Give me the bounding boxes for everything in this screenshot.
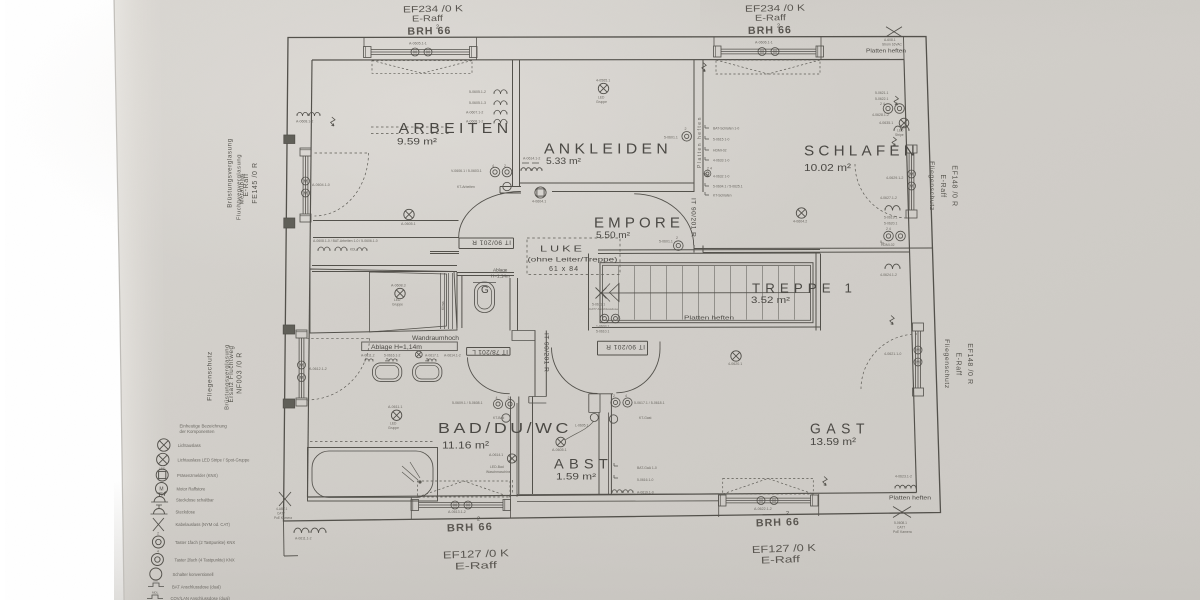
svg-text:Motor Raffstore: Motor Raffstore (177, 487, 206, 492)
svg-text:SCHLAFEN: SCHLAFEN (804, 144, 919, 160)
svg-text:A-0608.3: A-0608.3 (391, 284, 406, 288)
svg-text:BRH 66: BRH 66 (756, 516, 800, 530)
svg-text:5-0621.1: 5-0621.1 (875, 91, 888, 95)
svg-text:LED: LED (897, 129, 904, 133)
svg-text:5-0601.1: 5-0601.1 (659, 240, 673, 244)
svg-text:Metallbau: Metallbau (240, 174, 246, 205)
svg-text:A-0612.1-2: A-0612.1-2 (309, 367, 327, 371)
svg-text:A-0605.1-1: A-0605.1-1 (409, 42, 427, 46)
svg-text:11.16 m²: 11.16 m² (442, 441, 490, 452)
svg-text:BRH 66: BRH 66 (447, 521, 493, 535)
svg-text:5-0608.1: 5-0608.1 (894, 521, 907, 525)
svg-text:5-0604.1 / 5-0625.1: 5-0604.1 / 5-0625.1 (713, 185, 743, 189)
svg-text:Brüstungsverglasung: Brüstungsverglasung (225, 344, 231, 410)
svg-text:A-0608.1-2: A-0608.1-2 (466, 120, 483, 124)
svg-text:4: 4 (492, 164, 494, 168)
svg-text:V-0606.1 / 5-0603.1: V-0606.1 / 5-0603.1 (451, 169, 482, 173)
svg-text:L-0605.1: L-0605.1 (575, 424, 588, 428)
svg-text:EF127 /0 K: EF127 /0 K (443, 548, 510, 561)
svg-text:A-0608.1-0 / BAT-Arbeiten 1-0: A-0608.1-0 / BAT-Arbeiten 1-0 / 5-0606.1… (313, 239, 378, 243)
svg-text:GAST: GAST (810, 421, 870, 438)
svg-text:4: 4 (157, 550, 159, 554)
svg-text:M: M (772, 498, 776, 503)
svg-text:5.33 m²: 5.33 m² (546, 156, 581, 166)
svg-text:der Komponenten: der Komponenten (180, 429, 215, 434)
svg-text:IT 90/201 R: IT 90/201 R (690, 198, 697, 237)
svg-text:(ohne Leiter/Treppe): (ohne Leiter/Treppe) (528, 257, 618, 264)
svg-text:Klima: Klima (441, 301, 445, 310)
svg-text:2 4: 2 4 (886, 227, 891, 231)
svg-text:Fliegenschutz: Fliegenschutz (207, 351, 214, 401)
svg-text:E-Raff: E-Raff (955, 352, 962, 375)
svg-text:M: M (413, 50, 417, 55)
svg-text:1-0603.1: 1-0603.1 (596, 325, 609, 329)
svg-text:A-0614.1-2: A-0614.1-2 (523, 157, 540, 161)
svg-text:5-0619.1: 5-0619.1 (884, 216, 897, 220)
svg-text:4: 4 (496, 396, 498, 400)
svg-text:M: M (916, 348, 920, 353)
svg-text:M: M (910, 184, 914, 189)
svg-text:M: M (300, 375, 304, 380)
svg-text:A-0611.1-2: A-0611.1-2 (295, 537, 312, 541)
svg-text:ABST: ABST (554, 456, 613, 472)
svg-text:5-0605.1-2: 5-0605.1-2 (469, 90, 486, 94)
svg-text:E-Raff: E-Raff (761, 554, 801, 566)
svg-text:NF003 /0 R: NF003 /0 R (237, 352, 244, 394)
svg-text:A-0606.1-1: A-0606.1-1 (755, 41, 773, 45)
svg-text:A-0611.2: A-0611.2 (361, 354, 375, 358)
svg-text:4-0621.1-0: 4-0621.1-0 (884, 352, 901, 356)
svg-text:IT 78/201 L: IT 78/201 L (472, 348, 508, 355)
svg-text:KT-Arbeiten: KT-Arbeiten (457, 185, 475, 189)
svg-text:Fliegenschutz: Fliegenschutz (928, 161, 935, 211)
svg-text:Platten heften: Platten heften (697, 116, 703, 168)
svg-text:Stripe: Stripe (895, 133, 904, 137)
svg-text:BRH 66: BRH 66 (407, 25, 451, 38)
svg-text:Lichtauslass LED Stripe / Spot: Lichtauslass LED Stripe / Spot-Gruppe (178, 458, 251, 463)
svg-text:2: 2 (777, 24, 780, 30)
svg-text:4-0627.1-2: 4-0627.1-2 (880, 196, 897, 200)
svg-text:IT 90/201 R: IT 90/201 R (472, 239, 511, 246)
svg-text:LED-Bad: LED-Bad (490, 465, 504, 469)
svg-text:H=1,14m: H=1,14m (491, 274, 510, 279)
svg-text:2: 2 (685, 127, 687, 131)
svg-text:BRH 66: BRH 66 (748, 24, 792, 37)
svg-text:5-0616.1-0: 5-0616.1-0 (637, 478, 654, 482)
svg-text:2: 2 (436, 25, 439, 31)
svg-text:LED: LED (394, 298, 401, 302)
svg-text:A-0607.1-2: A-0607.1-2 (466, 111, 483, 115)
svg-text:4-0620.1: 4-0620.1 (728, 362, 742, 366)
svg-text:EF148 /0 R: EF148 /0 R (951, 165, 958, 206)
svg-text:2: 2 (504, 164, 506, 168)
svg-text:5-0605.1-3: 5-0605.1-3 (469, 101, 486, 105)
svg-text:9.59 m²: 9.59 m² (397, 137, 437, 148)
svg-text:Lichtauslass: Lichtauslass (178, 443, 201, 448)
svg-text:5-0616.1-2: 5-0616.1-2 (384, 354, 401, 358)
svg-text:KT-Bad: KT-Bad (493, 416, 504, 420)
svg-text:4-0624.1-2: 4-0624.1-2 (880, 273, 897, 277)
svg-text:M: M (760, 49, 764, 54)
svg-text:Kabelauslass (NYM od. CAT): Kabelauslass (NYM od. CAT) (176, 522, 231, 527)
svg-text:Einheutige Bezeichnung: Einheutige Bezeichnung (180, 424, 228, 429)
svg-text:BAD/DU/WC: BAD/DU/WC (438, 420, 572, 437)
svg-text:ARBEITEN: ARBEITEN (399, 121, 513, 137)
svg-text:5-0617.1 / 5-0618.1: 5-0617.1 / 5-0618.1 (634, 401, 665, 405)
svg-text:M: M (759, 498, 763, 503)
svg-text:A-0611.1: A-0611.1 (388, 405, 402, 409)
svg-text:bat: bat (154, 579, 158, 583)
svg-text:E-Raff: E-Raff (455, 560, 498, 572)
svg-text:Platten heften: Platten heften (889, 496, 931, 502)
svg-text:Platten heften: Platten heften (684, 316, 734, 322)
svg-text:4-0604.1: 4-0604.1 (532, 200, 546, 204)
svg-text:Fliegenschutz: Fliegenschutz (943, 339, 950, 389)
svg-text:A-0604.1-0: A-0604.1-0 (312, 183, 330, 187)
svg-text:2: 2 (786, 511, 789, 517)
svg-text:PoE Kamera: PoE Kamera (274, 516, 292, 520)
svg-text:CAT7 Anschlussdose: CAT7 Anschlussdose (589, 307, 618, 311)
svg-text:Platten heften: Platten heften (866, 49, 906, 55)
svg-text:Ablage: Ablage (493, 268, 508, 273)
svg-text:COV/LAN Anschlussdose (dual): COV/LAN Anschlussdose (dual) (171, 596, 231, 600)
svg-text:BAT Anschlussdose (dual): BAT Anschlussdose (dual) (172, 585, 221, 590)
svg-text:IT 90/201 R: IT 90/201 R (543, 333, 550, 372)
svg-text:A-0605.1: A-0605.1 (552, 448, 567, 452)
svg-text:A-0614.1-2: A-0614.1-2 (444, 354, 461, 358)
svg-text:E-Raff: E-Raff (755, 12, 787, 23)
svg-text:KT-Gast: KT-Gast (639, 416, 651, 420)
svg-text:5-0622.1: 5-0622.1 (875, 97, 888, 101)
svg-text:M: M (304, 191, 308, 196)
svg-text:LUKE: LUKE (540, 244, 585, 254)
svg-text:BAT-Schlafen 1-0: BAT-Schlafen 1-0 (713, 127, 739, 131)
svg-text:KDL: KDL (350, 248, 356, 252)
svg-text:LED: LED (390, 422, 397, 426)
svg-text:10.02 m²: 10.02 m² (804, 163, 852, 174)
svg-text:5-0610.1: 5-0610.1 (596, 330, 609, 334)
svg-text:EF148 /0 R: EF148 /0 R (966, 343, 973, 384)
svg-text:A-0619.1-0: A-0619.1-0 (637, 491, 654, 495)
svg-text:4-0633 1-0: 4-0633 1-0 (713, 159, 730, 163)
svg-text:5-0601.1: 5-0601.1 (664, 136, 678, 140)
svg-text:4-0565.1: 4-0565.1 (596, 79, 610, 83)
svg-text:Brüstungsverglasung: Brüstungsverglasung (227, 138, 234, 208)
svg-text:M: M (426, 50, 430, 55)
svg-text:4-ABT.1: 4-ABT.1 (276, 507, 288, 511)
svg-text:2: 2 (157, 532, 159, 536)
svg-text:2: 2 (676, 236, 678, 240)
svg-text:Taster 2fach (4 Tastpunkte) KN: Taster 2fach (4 Tastpunkte) KNX (175, 558, 235, 563)
svg-text:5-0609.1 / 5-0608.1: 5-0609.1 / 5-0608.1 (452, 401, 483, 405)
svg-text:M: M (916, 360, 920, 365)
svg-text:Gruppe: Gruppe (596, 100, 607, 104)
svg-text:4-0629.1-2: 4-0629.1-2 (886, 176, 903, 180)
svg-text:Taster 1fach (2 Tastpunkte) KN: Taster 1fach (2 Tastpunkte) KNX (175, 540, 235, 545)
svg-text:2: 2 (508, 396, 510, 400)
svg-text:Steckdose schaltbar: Steckdose schaltbar (176, 498, 214, 503)
svg-text:4: 4 (625, 394, 627, 398)
svg-text:HDMI-02: HDMI-02 (881, 243, 895, 247)
svg-text:G: G (481, 285, 489, 296)
svg-text:PoE Kamera: PoE Kamera (893, 530, 912, 534)
svg-text:BAT-GaA 1-0: BAT-GaA 1-0 (637, 466, 657, 470)
svg-text:Wandraumhoch: Wandraumhoch (412, 336, 459, 342)
svg-text:2: 2 (613, 394, 615, 398)
svg-text:E-Raff: E-Raff (412, 13, 444, 24)
svg-text:4-0623.1-2: 4-0623.1-2 (895, 475, 912, 479)
svg-text:A-0613.1-2: A-0613.1-2 (448, 510, 466, 514)
svg-text:5.50 m²: 5.50 m² (596, 230, 630, 240)
svg-text:M: M (300, 363, 304, 368)
svg-text:HDMI-02: HDMI-02 (713, 149, 727, 153)
svg-text:LED: LED (598, 96, 605, 100)
svg-text:Gruppe: Gruppe (392, 303, 403, 307)
svg-text:1.59 m²: 1.59 m² (556, 472, 596, 482)
svg-text:Gruppe: Gruppe (388, 426, 399, 430)
svg-text:A-0608.1-2: A-0608.1-2 (296, 120, 313, 124)
svg-text:A-0614.1: A-0614.1 (489, 453, 503, 457)
svg-text:5-0615 1-0: 5-0615 1-0 (713, 138, 730, 142)
svg-text:61 x 84: 61 x 84 (549, 264, 579, 273)
svg-text:A-0617.1: A-0617.1 (425, 354, 439, 358)
svg-text:A-608.1: A-608.1 (884, 38, 896, 42)
svg-text:IT 90/201 R: IT 90/201 R (606, 343, 645, 350)
svg-text:E-Raff: E-Raff (939, 174, 946, 197)
svg-text:4-0635.1: 4-0635.1 (879, 121, 893, 125)
svg-text:Strom 16VAC: Strom 16VAC (882, 43, 903, 47)
svg-text:4-0628.1-2: 4-0628.1-2 (872, 113, 889, 117)
svg-text:4-0632 1-0: 4-0632 1-0 (713, 175, 730, 179)
svg-text:Ablage H=1,14m: Ablage H=1,14m (371, 345, 422, 351)
svg-text:Steckdose: Steckdose (176, 510, 196, 515)
svg-text:Waschmaschine: Waschmaschine (486, 470, 511, 474)
svg-text:3.52 m²: 3.52 m² (751, 295, 790, 305)
svg-text:A-0605.1: A-0605.1 (401, 222, 416, 226)
svg-text:TREPPE 1: TREPPE 1 (752, 281, 857, 296)
svg-text:13.59 m²: 13.59 m² (810, 437, 857, 448)
svg-text:2: 2 (477, 517, 480, 523)
svg-text:M: M (159, 487, 163, 493)
svg-text:M: M (910, 172, 914, 177)
svg-text:M: M (453, 503, 457, 508)
svg-text:4-0604.2: 4-0604.2 (793, 220, 807, 224)
svg-text:M: M (773, 49, 777, 54)
svg-text:CAT7: CAT7 (277, 512, 285, 516)
svg-text:Schalter konventionell: Schalter konventionell (173, 572, 214, 577)
svg-text:5-0620.1: 5-0620.1 (884, 222, 897, 226)
svg-text:FE145 /0 R: FE145 /0 R (252, 162, 259, 203)
svg-text:A-0622.1-2: A-0622.1-2 (754, 507, 772, 511)
svg-text:KT-Schlafen: KT-Schlafen (713, 194, 732, 198)
svg-text:M: M (466, 503, 470, 508)
svg-text:M: M (304, 179, 308, 184)
svg-text:Präsenzmelder (KNX): Präsenzmelder (KNX) (177, 473, 218, 478)
svg-text:MDL: MDL (152, 591, 159, 595)
svg-text:CAT7: CAT7 (897, 526, 905, 530)
